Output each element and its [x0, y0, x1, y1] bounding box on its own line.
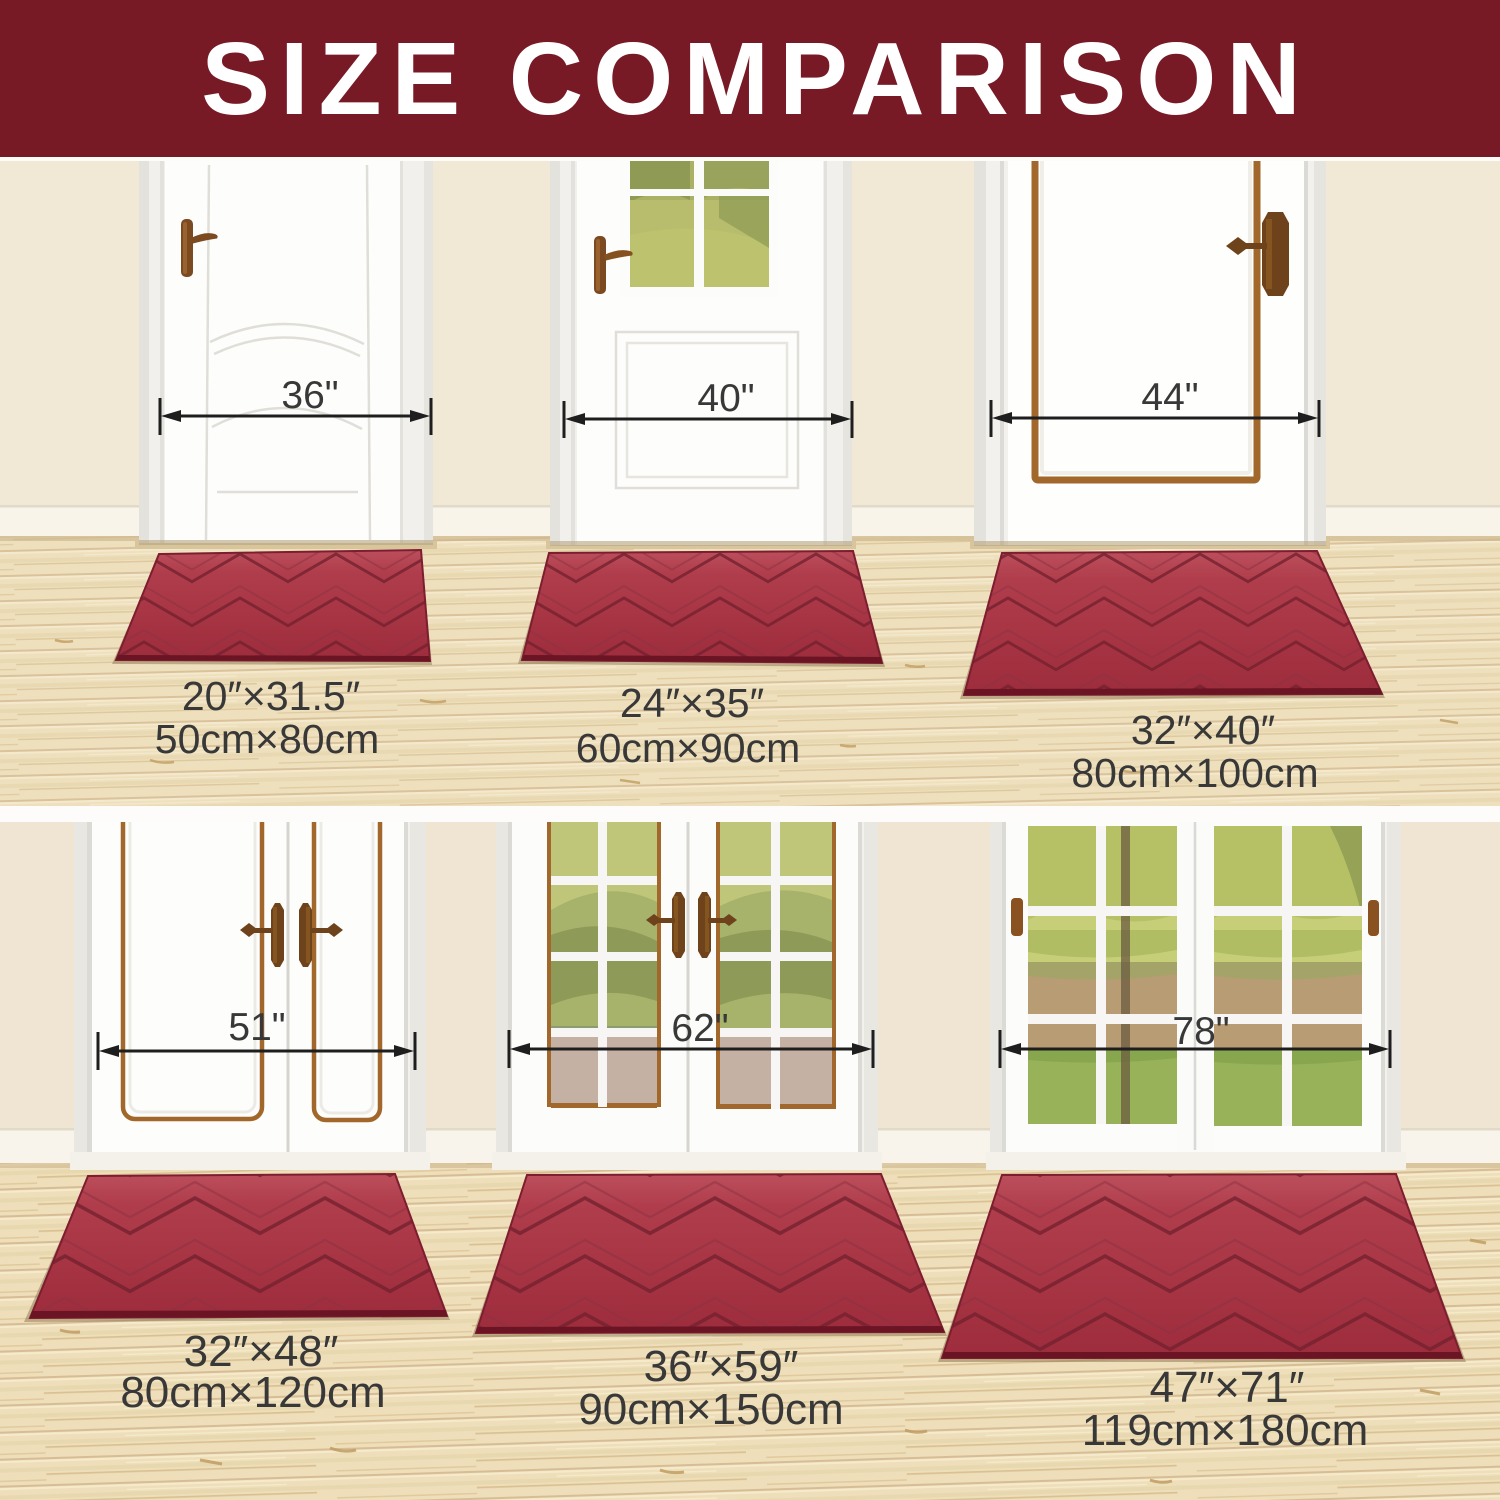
- svg-text:32″×40″: 32″×40″: [1131, 707, 1275, 753]
- svg-text:44": 44": [1141, 376, 1198, 419]
- svg-text:20″×31.5″: 20″×31.5″: [182, 673, 360, 719]
- svg-text:36": 36": [281, 374, 338, 417]
- svg-text:50cm×80cm: 50cm×80cm: [155, 716, 379, 762]
- svg-text:119cm×180cm: 119cm×180cm: [1082, 1406, 1369, 1455]
- svg-text:SIZE COMPARISON: SIZE COMPARISON: [201, 21, 1311, 136]
- svg-text:60cm×90cm: 60cm×90cm: [576, 725, 800, 771]
- svg-text:80cm×120cm: 80cm×120cm: [120, 1368, 385, 1417]
- svg-text:78": 78": [1172, 1010, 1229, 1053]
- svg-text:90cm×150cm: 90cm×150cm: [578, 1385, 843, 1434]
- svg-text:24″×35″: 24″×35″: [620, 680, 764, 726]
- svg-text:47″×71″: 47″×71″: [1150, 1363, 1305, 1412]
- svg-text:51": 51": [228, 1006, 285, 1049]
- svg-text:80cm×100cm: 80cm×100cm: [1071, 750, 1318, 796]
- svg-text:62": 62": [671, 1007, 728, 1050]
- svg-text:40": 40": [697, 377, 754, 420]
- svg-text:36″×59″: 36″×59″: [644, 1342, 799, 1391]
